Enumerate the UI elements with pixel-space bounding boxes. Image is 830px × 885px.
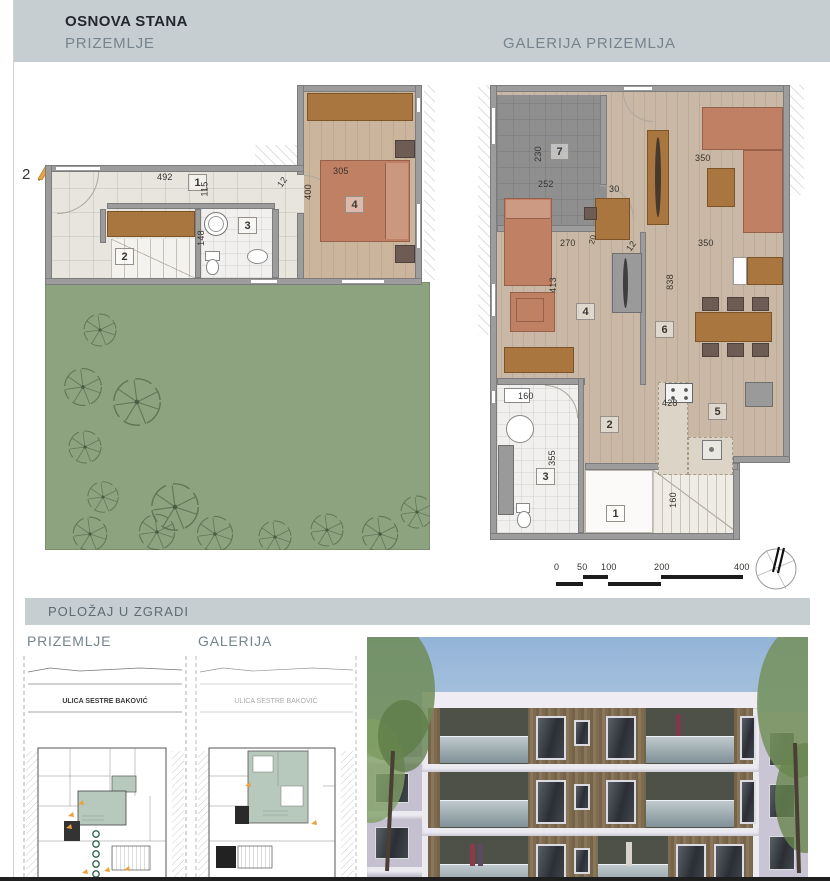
building-window (606, 780, 636, 824)
room-label-2: 2 (115, 248, 134, 265)
room-label-4: 4 (345, 196, 364, 213)
chair (727, 297, 744, 311)
wall (415, 85, 422, 285)
dining-table (695, 312, 772, 342)
closet (107, 211, 195, 237)
window (491, 107, 496, 145)
mini-plan-label-gallery: GALERIJA (198, 633, 272, 649)
dim-label: 492 (157, 172, 173, 182)
ground-floor-plan: 492 1 115 12 305 400 4 3 148 2 (45, 85, 435, 550)
armchair-seat (516, 298, 544, 322)
building-window (676, 844, 706, 878)
washbasin (506, 415, 534, 443)
scale-segment (608, 582, 661, 586)
dim-label: 115 (199, 182, 209, 197)
scale-bar: 0 50 100 200 400 (556, 562, 751, 586)
tree-left (367, 637, 459, 878)
balcony-glass (646, 800, 734, 827)
floor-band (428, 708, 753, 764)
hatch-area (255, 145, 297, 165)
page-subtitle-left: PRIZEMLJE (65, 35, 155, 52)
wall (600, 95, 607, 185)
nightstand (395, 245, 415, 263)
building-window (536, 716, 566, 760)
page-title: OSNOVA STANA (65, 13, 188, 30)
hatch-area (790, 85, 804, 195)
room-label-2: 2 (600, 416, 619, 433)
sofa (702, 107, 783, 150)
building-window (574, 720, 590, 746)
room-label-6: 6 (655, 321, 674, 338)
wall (490, 533, 740, 540)
person-figure (478, 844, 483, 866)
building-notch (740, 463, 790, 540)
position-title: POLOŽAJ U ZGRADI (48, 604, 189, 619)
shelf (733, 257, 747, 285)
building-window (574, 848, 590, 874)
wall (497, 378, 585, 385)
person-figure (676, 714, 681, 736)
mini-plan-ground: ULICA SESTRE BAKOVIĆ (20, 656, 190, 878)
floor-band (428, 836, 753, 878)
entrance-door-opening (623, 86, 653, 91)
garden (45, 282, 430, 550)
room-label-4: 4 (576, 303, 595, 320)
wardrobe-handle (623, 258, 628, 308)
balcony-glass (646, 736, 734, 763)
page-edge-line (13, 0, 14, 878)
building-window (536, 844, 566, 878)
dim-label: 400 (303, 184, 313, 200)
stairs (653, 470, 738, 533)
wall (783, 85, 790, 463)
person-figure (470, 844, 475, 866)
scale-tick: 50 (577, 562, 587, 572)
mini-plan-gallery: ULICA SESTRE BAKOVIĆ (193, 656, 360, 878)
main-building (422, 692, 759, 878)
wall (100, 209, 106, 243)
room-label-3: 3 (536, 468, 555, 485)
floor-band (428, 772, 753, 828)
bed-pillows (506, 200, 550, 219)
dim-label: 350 (695, 153, 711, 163)
dim-label: 252 (538, 179, 554, 189)
window (491, 283, 496, 317)
washing-machine-drum (208, 216, 224, 232)
wall (297, 85, 422, 92)
chair (727, 343, 744, 357)
storage-room (585, 470, 653, 533)
desk (595, 198, 630, 240)
dim-label: 428 (662, 398, 678, 408)
window (416, 97, 421, 113)
chair (702, 297, 719, 311)
building-window (574, 784, 590, 810)
wall (272, 209, 279, 278)
dim-label: 838 (665, 274, 675, 290)
desk-chair (584, 207, 597, 220)
balcony-glass (598, 864, 668, 878)
wall (733, 456, 790, 463)
person-figure (626, 842, 632, 866)
scale-tick: 400 (734, 562, 750, 572)
floor-slab (422, 828, 759, 836)
dim-label: 355 (547, 450, 557, 466)
window (341, 279, 385, 284)
toilet (206, 259, 219, 275)
room-label-3: 3 (238, 217, 257, 234)
scale-segment (556, 582, 583, 586)
scale-tick: 200 (654, 562, 670, 572)
street-name: ULICA SESTRE BAKOVIĆ (234, 696, 317, 705)
hatch-area (478, 85, 490, 335)
coffee-table (707, 168, 735, 207)
wall (733, 463, 740, 540)
parapet (422, 692, 759, 709)
scale-segment (661, 575, 743, 579)
sink-drain (709, 447, 714, 452)
chair (752, 297, 769, 311)
nightstand (395, 140, 415, 158)
closet-door-handle (655, 137, 661, 217)
wardrobe (307, 93, 413, 121)
chair (752, 343, 769, 357)
dresser (504, 347, 574, 373)
toilet (517, 511, 531, 528)
dim-label: 30 (609, 184, 619, 194)
fridge (745, 382, 773, 407)
dim-label: 350 (698, 238, 714, 248)
wall (578, 378, 584, 533)
room-label-1: 1 (606, 505, 625, 522)
chair (702, 343, 719, 357)
room-label-5: 5 (708, 403, 727, 420)
dim-label: 270 (560, 238, 576, 248)
unit-number: 2 (22, 166, 30, 183)
scale-segment (583, 575, 608, 579)
window (491, 390, 496, 404)
dim-label: 160 (668, 492, 678, 508)
sideboard (747, 257, 783, 285)
mini-plan-label-ground: PRIZEMLJE (27, 633, 111, 649)
bath-counter (498, 445, 514, 515)
hatch-area (424, 85, 435, 280)
header-band: OSNOVA STANA PRIZEMLJE GALERIJA PRIZEMLJ… (14, 0, 830, 62)
scale-tick: 100 (601, 562, 617, 572)
window (250, 279, 278, 284)
entrance-door-opening (55, 166, 101, 171)
building-window (536, 780, 566, 824)
garden-trees (45, 282, 430, 550)
tree-right (745, 637, 808, 878)
wall (45, 165, 52, 285)
building-window (606, 716, 636, 760)
wall (297, 85, 304, 175)
street-name: ULICA SESTRE BAKOVIĆ (62, 696, 147, 705)
page-subtitle-right: GALERIJA PRIZEMLJA (503, 35, 676, 52)
north-arrow-icon (752, 545, 800, 593)
building-window (714, 844, 744, 878)
scale-tick: 0 (554, 562, 559, 572)
dim-label: 160 (518, 391, 534, 401)
bed-pillows (385, 163, 408, 239)
dim-label: 413 (548, 277, 558, 293)
wall (297, 213, 304, 285)
floor-slab (422, 764, 759, 772)
bottom-border (0, 877, 830, 881)
dim-label: 148 (196, 230, 206, 246)
gallery-floor-plan: 230 7 252 30 20 350 270 12 413 4 838 350… (490, 85, 810, 555)
brochure-page: OSNOVA STANA PRIZEMLJE GALERIJA PRIZEMLJ… (0, 0, 830, 885)
sofa (743, 150, 783, 233)
building-photo (367, 637, 808, 878)
dim-label: 230 (533, 146, 543, 162)
window (416, 203, 421, 249)
sink (247, 249, 268, 264)
position-band: POLOŽAJ U ZGRADI (25, 598, 810, 625)
room-label-7: 7 (550, 143, 569, 160)
dim-label: 305 (333, 166, 349, 176)
